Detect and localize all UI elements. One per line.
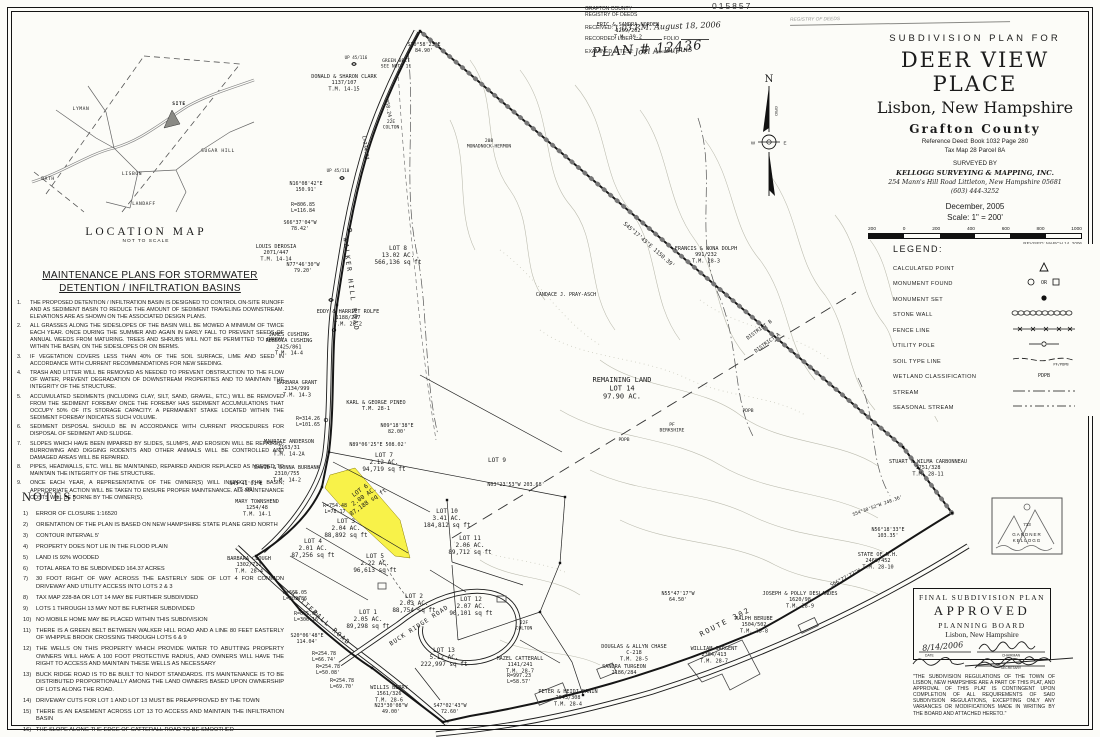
note-item: NO MOBILE HOME MAY BE PLACED WITHIN THIS… [36, 617, 284, 625]
map-label: EDDY & HARRIET ROLFE1188/287T.M. 28-2 [317, 309, 379, 327]
legend-item-label: WETLAND CLASSIFICATION [893, 374, 1011, 380]
seal-name-line2: KELLOGG [1013, 538, 1042, 543]
map-label: WILLIS BERRY1561/326T.M. 28-6 [370, 685, 408, 703]
legend-item-label: CALCULATED POINT [893, 266, 1011, 272]
seal-mountains [996, 504, 1054, 551]
town-boundary-lines [34, 56, 240, 212]
liber-blank [634, 34, 662, 40]
site-label: SITE [172, 101, 185, 107]
plan-scale: Scale: 1" = 200' [856, 213, 1094, 222]
scale-bar-tick-label: 1000 [1071, 227, 1082, 232]
note-item: THE SLOPE ALONG THE EDGE OF CATTERALL RO… [36, 727, 284, 735]
seal-name-line1: GARDNER [1012, 532, 1042, 537]
svg-text:PDPB: PDPB [1038, 373, 1050, 379]
town-label: LYMAN [73, 106, 90, 112]
map-label: UP 45/110 [327, 168, 350, 173]
map-label: N89°06'25"E 508.02' [349, 442, 406, 448]
map-label: LOT 52.22 AC.96,613 sq ft [353, 553, 397, 574]
map-label: DISTRICT A [753, 332, 781, 355]
legend-rows: CALCULATED POINTMONUMENT FOUNDORMONUMENT… [893, 261, 1093, 416]
maintenance-item: TRASH AND LITTER WILL BE REMOVED AS NEED… [30, 370, 284, 391]
map-label: PETER & HEIDI DANIN2043/308T.M. 28-4 [538, 689, 597, 707]
scale-bar: 20002004006008001000 REVISED: MARCH 14, … [868, 227, 1082, 246]
svg-text:OR: OR [1041, 280, 1048, 286]
approval-line1: FINAL SUBDIVISION PLAN [914, 593, 1050, 602]
legend-item: UTILITY POLE [893, 339, 1093, 355]
map-label: LOT 9 [488, 457, 506, 464]
approval-line2: APPROVED [914, 603, 1050, 619]
surveyor-address: 254 Mann's Hill Road Littleton, New Hamp… [856, 179, 1094, 186]
maintenance-item: SEDIMENT DISPOSAL SHOULD BE IN ACCORDANC… [30, 424, 284, 438]
map-label: R=314.26L=101.65 [296, 416, 320, 428]
map-label: N03°23'53"W 203.68' [487, 482, 544, 488]
map-label: R=997.23L=58.57' [507, 673, 531, 685]
compass-e-label: E [783, 141, 786, 146]
legend-item-label: STONE WALL [893, 312, 1011, 318]
legend-item-label: SOIL TYPE LINE [893, 359, 1011, 365]
legend-item: SEASONAL STREAM [893, 401, 1093, 417]
location-map-subtitle: NOT TO SCALE [26, 239, 266, 244]
north-arrow-upper-blade [763, 86, 769, 132]
scale-bar-tick-label: 800 [1036, 227, 1044, 232]
legend-title: LEGEND: [893, 244, 1093, 254]
plan-title: DEER VIEW PLACE [856, 48, 1094, 96]
map-label: DONALD & SHARON CLARK1137/107T.M. 14-15 [311, 74, 377, 92]
legend-item: WETLAND CLASSIFICATIONPDPB [893, 370, 1093, 386]
location-map-title: LOCATION MAP [26, 226, 266, 238]
scale-bar-labels: 20002004006008001000 [868, 227, 1082, 232]
map-label: S70°58'23"E84.90' [407, 42, 440, 54]
map-label: S66°27'27"W [829, 567, 862, 588]
legend-item: CALCULATED POINT [893, 261, 1093, 277]
scale-bar-tick-label: 200 [868, 227, 876, 232]
map-label: STUART & WILMA CARBONNEAU1751/328T.M. 28… [889, 459, 967, 477]
surveyed-by-label: SURVEYED BY [856, 160, 1094, 167]
maintenance-item: ACCUMULATED SEDIMENTS (INCLUDING CLAY, S… [30, 394, 284, 422]
map-label: R=254.78L=66.74' [312, 651, 336, 663]
maintenance-item: PIPES, HEADWALLS, ETC. WILL BE MAINTAINE… [30, 464, 284, 478]
location-map-drawing: LYMANSUGAR HILLBATHLISBONLANDAFFSITE [26, 52, 266, 218]
map-label: PDPB [618, 437, 629, 443]
legend-item: MONUMENT FOUNDOR [893, 277, 1093, 293]
north-arrow-lower-blade [769, 152, 775, 196]
legend-item-label: MONUMENT SET [893, 297, 1011, 303]
location-map: LYMANSUGAR HILLBATHLISBONLANDAFFSITE LOC… [26, 52, 266, 244]
maintenance-list: THE PROPOSED DETENTION / INFILTRATION BA… [16, 300, 284, 502]
registry-agency-line2: REGISTRY OF DEEDS [585, 12, 637, 18]
map-label: R=665.05L=306.16 [294, 611, 318, 623]
map-label: N16°08'42"E150.91' [289, 181, 322, 193]
legend-item-label: SEASONAL STREAM [893, 405, 1011, 411]
plan-sheet: ERIC & SANDRA NORDEN1209/202T.M. 39-2DON… [0, 0, 1100, 737]
scale-bar-segments [868, 233, 1082, 239]
surveyor-name: KELLOGG SURVEYING & MAPPING, INC. [856, 169, 1094, 177]
map-label: LOT 72.12 AC.94,719 sq ft [362, 452, 406, 473]
location-map-town-labels: LYMANSUGAR HILLBATHLISBONLANDAFFSITE [41, 101, 235, 207]
note-item: 30 FOOT RIGHT OF WAY ACROSS THE EASTERLY… [36, 576, 284, 591]
map-label: R=754.48L=78.17 [323, 503, 347, 515]
map-label: R=806.85L=116.84 [291, 202, 315, 214]
maintenance-title-line1: MAINTENANCE PLANS FOR STORMWATER [42, 270, 258, 281]
county-name: Grafton County [856, 122, 1094, 136]
approval-disclaimer: "THE SUBDIVISION REGULATIONS OF THE TOWN… [913, 674, 1055, 717]
below-box-signatures [905, 650, 1080, 676]
plan-date: December, 2005 [856, 202, 1094, 211]
scale-bar-tick-label: 400 [967, 227, 975, 232]
map-label: N55°47'17"W64.50' [661, 591, 695, 603]
plan-kicker: SUBDIVISION PLAN FOR [856, 33, 1094, 44]
maintenance-title-line2: DETENTION / INFILTRATION BASINS [59, 283, 241, 294]
map-label: S66°37'04"W78.42' [283, 220, 317, 232]
legend-panel: LEGEND: CALCULATED POINTMONUMENT FOUNDOR… [893, 244, 1093, 416]
note-item: LOTS 1 THROUGH 13 MAY NOT BE FURTHER SUB… [36, 606, 284, 614]
note-item: ORIENTATION OF THE PLAN IS BASED ON NEW … [36, 522, 284, 530]
surveyor-seal: 733 GARDNER KELLOGG [990, 496, 1064, 561]
map-label: 358.24' [383, 99, 393, 121]
note-item: BUCK RIDGE ROAD IS TO BE BUILT TO NHDOT … [36, 672, 284, 695]
map-label: GREEN BELTSEE NOTE 11 [381, 58, 412, 69]
scale-bar-tick-label: 600 [1002, 227, 1010, 232]
north-arrow-n-label: N [765, 74, 774, 85]
maintenance-item: ALL GRASSES ALONG THE SIDESLOPES OF THE … [30, 323, 284, 351]
maintenance-item: THE PROPOSED DETENTION / INFILTRATION BA… [30, 300, 284, 321]
map-label: R=665.05L=203.86 [283, 590, 307, 602]
scale-bar-tick-label: 200 [932, 227, 940, 232]
map-label: N23°30'08"W49.00' [374, 703, 408, 715]
recorded-label: RECORDED: LIBER [585, 36, 633, 42]
note-item: CONTOUR INTERVAL 5' [36, 533, 284, 541]
received-label: RECEIVED: [585, 25, 613, 31]
scrub-texture [450, 250, 830, 572]
svg-text:PF/PDPB: PF/PDPB [1053, 362, 1068, 366]
legend-item: STONE WALL [893, 308, 1093, 324]
map-label: R=254.78L=69.70' [330, 678, 354, 690]
map-label: LOT 122.07 AC.90,101 sq ft [449, 596, 493, 617]
map-label: UP 45/116 [345, 55, 368, 60]
note-item: LAND IS 92% WOODED [36, 555, 284, 563]
note-item: PROPERTY DOES NOT LIE IN THE FLOOD PLAIN [36, 544, 284, 552]
legend-item-label: STREAM [893, 390, 1011, 396]
legend-item: MONUMENT SET [893, 292, 1093, 308]
map-label: N56°18'33"E103.35' [871, 527, 904, 539]
maintenance-item: SLOPES WHICH HAVE BEEN IMPAIRED BY SLIDE… [30, 441, 284, 462]
plan-subtitle: Lisbon, New Hampshire [856, 98, 1094, 117]
note-item: THERE IS A GREEN BELT BETWEEN WALKER HIL… [36, 628, 284, 643]
map-label: N77°46'30"W79.20' [286, 262, 320, 274]
map-label: DOUGLAS & ALLYN CHASEC-218T.M. 28-5 [601, 644, 667, 662]
legend-item-label: MONUMENT FOUND [893, 281, 1011, 287]
title-block: SUBDIVISION PLAN FOR DEER VIEW PLACE Lis… [856, 33, 1094, 246]
legend-item-label: UTILITY POLE [893, 343, 1011, 349]
town-label: SUGAR HILL [201, 148, 235, 154]
legend-item: STREAM [893, 385, 1093, 401]
district-line [452, 292, 856, 538]
map-label: 22ECOLTON [383, 119, 400, 130]
map-label: LOT 103.41 AC.184,812 sq ft [424, 508, 471, 529]
map-label: S54°30'52"W 248.36' [852, 494, 903, 518]
town-label: BATH [41, 176, 54, 182]
note-item: THERE IS AN EASEMENT ACROSS LOT 13 TO AC… [36, 709, 284, 724]
map-label: HAZEL CATTERALL1141/241T.M. 28-7 [497, 656, 544, 674]
map-label: JOSEPH & POLLY DESLANDES1620/98T.M. 28-9 [763, 591, 838, 609]
map-label: PDPB [742, 408, 753, 414]
seal-number: 733 [1023, 522, 1031, 527]
map-label: LOT 813.02 AC.566,136 sq ft [375, 245, 422, 266]
map-label: S20°06'48"E114.04' [290, 633, 323, 645]
map-label: S47°02'43"W72.60' [433, 703, 467, 715]
compass-w-label: W [751, 141, 756, 146]
map-label: LOUIS DEROSIA2071/447T.M. 14-14 [256, 244, 297, 262]
map-label: PFBERKSHIRE [660, 422, 685, 433]
map-label: STATE OF N.H.2460/452T.M. 28-10 [858, 552, 899, 570]
received-value: 1:03 P.M. August 18, 2006 [614, 20, 721, 33]
legend-item: SOIL TYPE LINEPF/PDPB [893, 354, 1093, 370]
seasonal-symbol-icon [1011, 399, 1077, 417]
scale-bar-tick-label: 0 [903, 227, 906, 232]
map-label: R=254.78L=50.08' [316, 664, 340, 676]
note-item: DRIVEWAY CUTS FOR LOT 1 AND LOT 13 MUST … [36, 698, 284, 706]
map-label: 208MONADNOCK-HERMON [467, 138, 511, 149]
note-item: ERROR OF CLOSURE 1:16520 [36, 511, 284, 519]
surveyor-phone: (603) 444-3252 [856, 188, 1094, 195]
note-item: TAX MAP 228-8A OR LOT 14 MAY BE FURTHER … [36, 595, 284, 603]
town-label: LANDAFF [132, 201, 156, 207]
note-item: TOTAL AREA TO BE SUBDIVIDED 164.37 ACRES [36, 566, 284, 574]
legend-item-label: FENCE LINE [893, 328, 1011, 334]
reference-deed: Reference Deed: Book 1032 Page 280 [856, 138, 1094, 145]
map-label: LOT 12.05 AC.89,298 sq ft [346, 609, 390, 630]
town-label: LISBON [122, 171, 142, 177]
north-arrow: N GRID W E [744, 70, 794, 207]
map-label: N09°18'38"E82.00' [380, 423, 413, 435]
grid-north-label: GRID [774, 106, 779, 116]
approval-line4: Lisbon, New Hampshire [914, 630, 1050, 639]
map-label: LOT 112.06 AC.89,712 sq ft [448, 535, 492, 556]
tax-map-parcel: Tax Map 28 Parcel 8A [856, 147, 1094, 154]
stream-lines [408, 52, 890, 496]
legend-item: FENCE LINE [893, 323, 1093, 339]
map-label: KARL & GEORGE PINEOT.M. 28-1 [346, 400, 405, 412]
notes-panel: NOTES: ERROR OF CLOSURE 1:16520ORIENTATI… [22, 490, 284, 737]
map-label: FRANCIS & NONA DOLPH991/232T.M. 28-3 [675, 246, 737, 264]
map-label: REMAINING LANDLOT 1497.90 AC. [592, 376, 651, 401]
note-item: THE WELLS ON THIS PROPERTY WHICH PROVIDE… [36, 646, 284, 669]
maintenance-item: IF VEGETATION COVERS LESS THAN 40% OF TH… [30, 354, 284, 368]
notes-title: NOTES: [22, 490, 284, 505]
notes-list: ERROR OF CLOSURE 1:16520ORIENTATION OF T… [22, 511, 284, 737]
map-label: CANDACE J. PRAY-ASCH [536, 292, 596, 298]
approval-line3: PLANNING BOARD [914, 621, 1050, 630]
maintenance-panel: MAINTENANCE PLANS FOR STORMWATER DETENTI… [16, 270, 284, 504]
